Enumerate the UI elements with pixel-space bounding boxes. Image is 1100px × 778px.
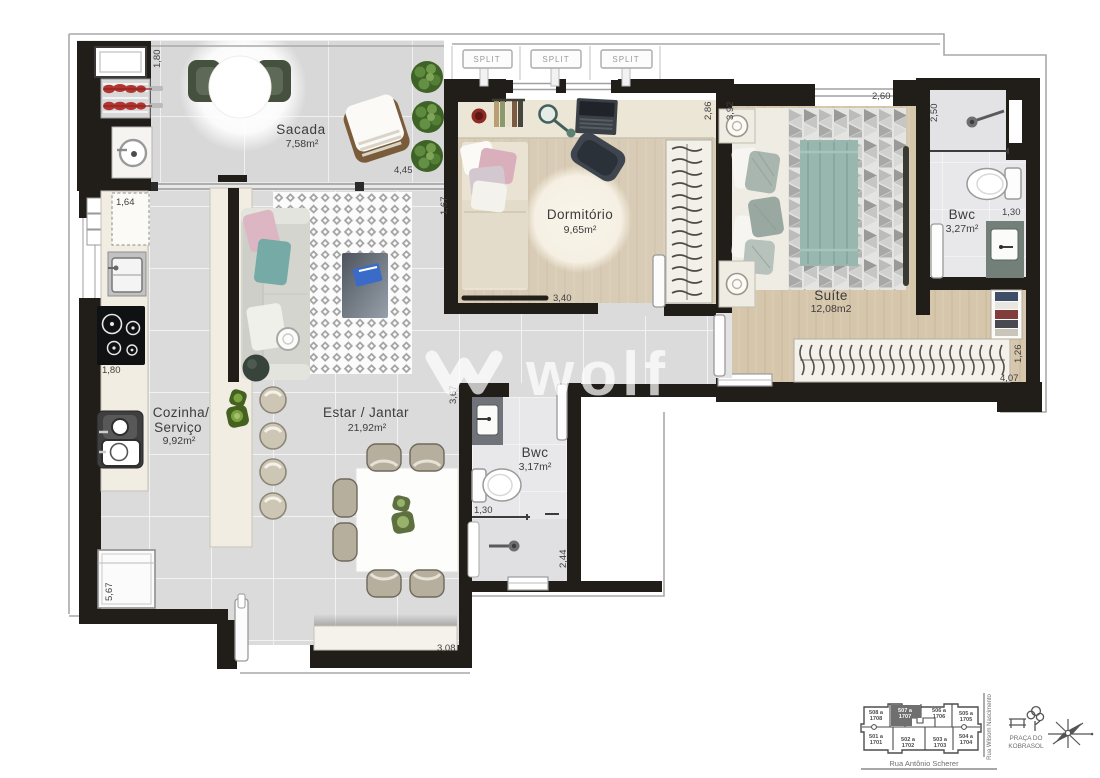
svg-text:Rua Antônio Scherer: Rua Antônio Scherer bbox=[889, 759, 959, 768]
svg-text:1706: 1706 bbox=[933, 714, 945, 720]
svg-text:2,44: 2,44 bbox=[558, 550, 569, 569]
svg-text:Serviço: Serviço bbox=[154, 420, 202, 435]
svg-text:Bwc: Bwc bbox=[522, 445, 549, 460]
svg-text:1,67: 1,67 bbox=[439, 197, 450, 216]
svg-text:4,45: 4,45 bbox=[394, 165, 413, 176]
svg-text:9,92m²: 9,92m² bbox=[163, 435, 196, 447]
svg-text:9,65m²: 9,65m² bbox=[564, 224, 597, 236]
svg-text:4,07: 4,07 bbox=[1000, 373, 1019, 384]
svg-text:wolf: wolf bbox=[525, 340, 670, 409]
svg-text:Sacada: Sacada bbox=[276, 122, 325, 137]
svg-text:2,60: 2,60 bbox=[872, 91, 891, 102]
svg-text:KOBRASOL: KOBRASOL bbox=[1008, 743, 1044, 750]
svg-text:3,17m²: 3,17m² bbox=[519, 461, 552, 473]
svg-text:21,92m²: 21,92m² bbox=[348, 422, 387, 434]
svg-text:2,50: 2,50 bbox=[929, 104, 940, 123]
svg-text:1703: 1703 bbox=[934, 743, 946, 749]
svg-text:1,80: 1,80 bbox=[152, 50, 163, 69]
svg-text:2,86: 2,86 bbox=[703, 102, 714, 121]
svg-text:5,67: 5,67 bbox=[104, 583, 115, 602]
svg-text:Estar / Jantar: Estar / Jantar bbox=[323, 405, 409, 420]
svg-text:1,64: 1,64 bbox=[116, 197, 135, 208]
svg-text:1,30: 1,30 bbox=[1002, 207, 1021, 218]
svg-text:3,08: 3,08 bbox=[437, 643, 456, 654]
svg-text:3,92: 3,92 bbox=[725, 102, 736, 121]
svg-text:Cozinha/: Cozinha/ bbox=[153, 405, 209, 420]
svg-text:1702: 1702 bbox=[902, 743, 914, 749]
svg-text:SPLIT: SPLIT bbox=[542, 55, 569, 64]
svg-text:1705: 1705 bbox=[960, 717, 972, 723]
svg-text:3,40: 3,40 bbox=[553, 293, 572, 304]
svg-text:1,26: 1,26 bbox=[1013, 345, 1024, 364]
svg-text:7,58m²: 7,58m² bbox=[286, 138, 319, 150]
svg-text:Dormitório: Dormitório bbox=[547, 207, 613, 222]
svg-text:1,30: 1,30 bbox=[474, 505, 493, 516]
svg-text:SPLIT: SPLIT bbox=[473, 55, 500, 64]
svg-text:1707: 1707 bbox=[899, 714, 911, 720]
svg-text:Bwc: Bwc bbox=[949, 207, 976, 222]
svg-text:1704: 1704 bbox=[960, 740, 973, 746]
svg-text:1701: 1701 bbox=[870, 740, 882, 746]
svg-text:Suíte: Suíte bbox=[814, 288, 848, 303]
svg-text:Rua Wilsom Nascimento: Rua Wilsom Nascimento bbox=[987, 693, 993, 759]
svg-text:1708: 1708 bbox=[870, 716, 882, 722]
svg-text:1,80: 1,80 bbox=[102, 365, 121, 376]
svg-text:SPLIT: SPLIT bbox=[612, 55, 639, 64]
svg-text:12,08m2: 12,08m2 bbox=[811, 303, 852, 315]
svg-text:3,27m²: 3,27m² bbox=[946, 223, 979, 235]
svg-text:PRAÇA DO: PRAÇA DO bbox=[1009, 735, 1042, 742]
